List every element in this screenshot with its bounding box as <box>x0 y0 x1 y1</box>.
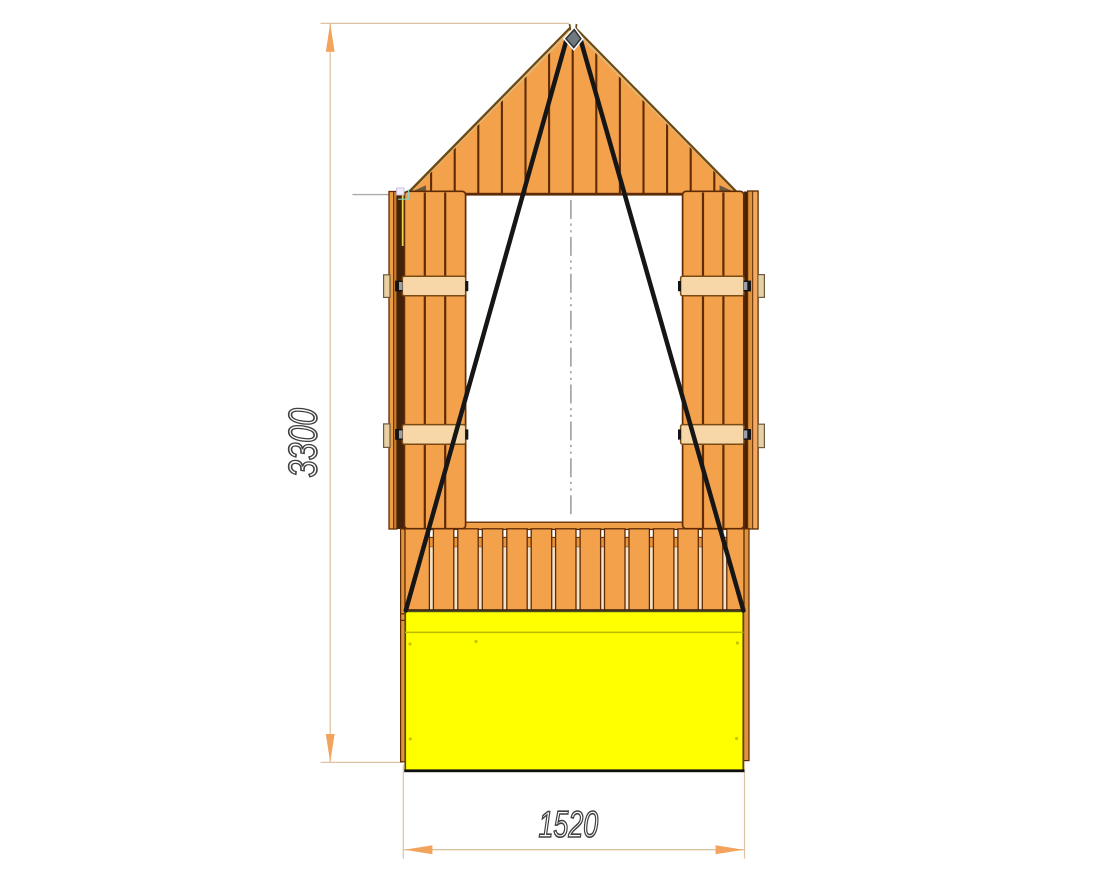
svg-text:3300: 3300 <box>281 408 326 477</box>
svg-text:1520: 1520 <box>539 804 599 845</box>
